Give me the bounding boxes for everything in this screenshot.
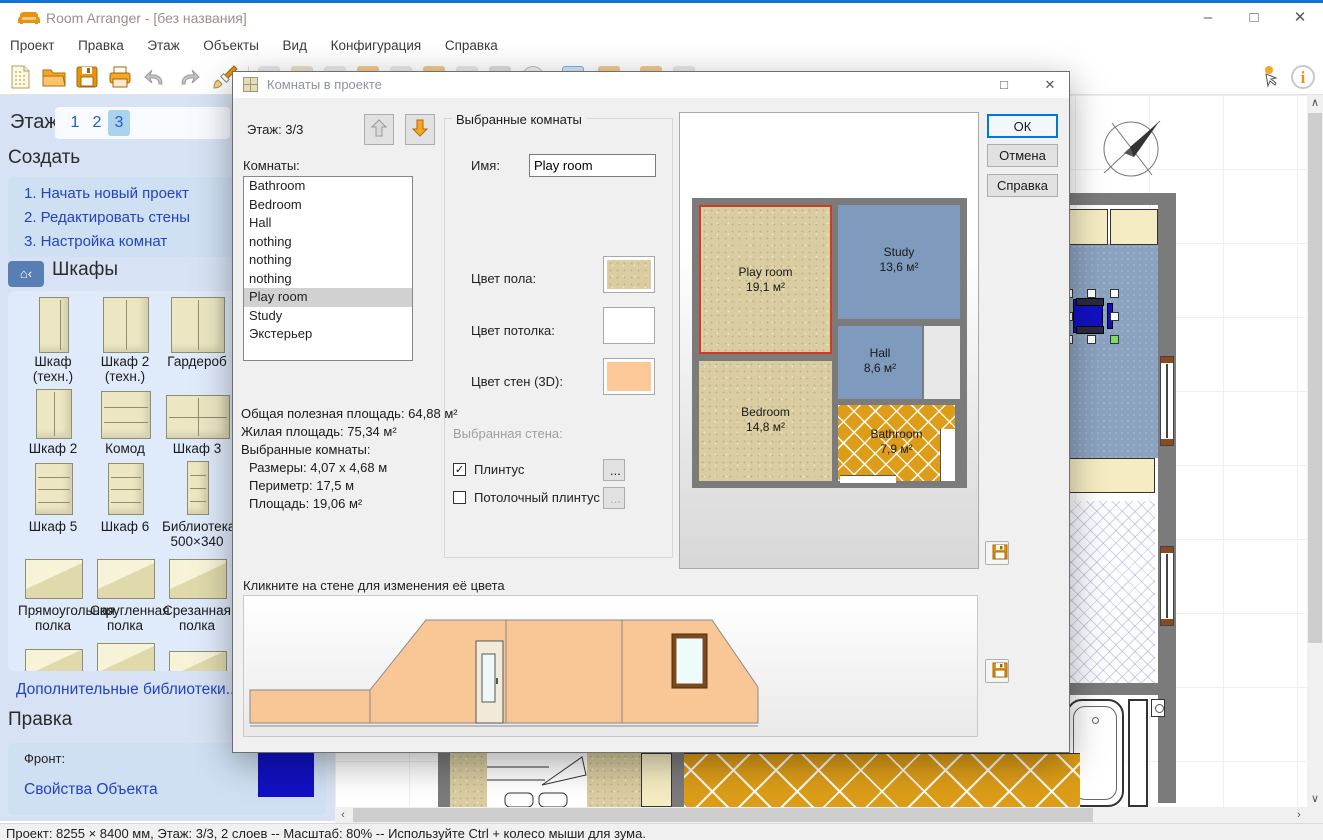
plan-cabinet[interactable] [641,753,672,807]
save-icon[interactable] [74,64,100,90]
furniture-thumb-shelf-3d[interactable] [169,651,227,671]
walls-color-preview [607,362,651,391]
furniture-thumb-cabinet[interactable] [39,297,69,353]
furniture-label[interactable]: Срезанная полка [162,603,232,633]
wall-elevation-drawing[interactable] [244,596,977,736]
menu-edit[interactable]: Правка [68,33,134,58]
home-icon: ⌂ [20,266,28,281]
preview-gap [924,326,960,399]
arrow-up-icon [371,119,387,137]
preview-room-name: Play room [738,265,792,279]
furniture-label[interactable]: Прямоугольная полка [18,603,88,633]
menu-objects[interactable]: Объекты [193,33,269,58]
room-list-item[interactable]: nothing [244,270,412,289]
menu-view[interactable]: Вид [273,33,317,58]
furniture-thumb-dresser[interactable] [101,391,151,439]
detail-line [111,477,141,478]
ceiling-color-preview [607,311,651,340]
walls-color-swatch[interactable] [603,358,655,395]
vertical-scrollbar[interactable]: ∧ ∨ [1307,95,1323,807]
furniture-label[interactable]: Шкаф 6 [90,519,160,534]
move-room-up-button[interactable] [364,114,394,145]
furniture-thumb-shelf-3d[interactable] [169,559,227,599]
help-button[interactable]: Справка [987,174,1058,197]
scroll-left-arrow[interactable]: ‹ [335,807,351,823]
preview-room-bathroom[interactable]: Bathroom7,9 м² [838,405,955,481]
preview-door-opening [940,429,955,481]
plan-fixture-small[interactable] [1151,699,1165,717]
plan-fixture[interactable] [1128,699,1148,807]
floor-tab-1[interactable]: 1 [64,110,86,136]
stat-total-usable-area: Общая полезная площадь: 64,88 м² [241,406,458,421]
detail-line [104,407,148,408]
detail-line [111,489,141,490]
preview-room-playroom[interactable]: Play room19,1 м² [699,205,832,354]
detail-line [198,300,199,350]
furniture-thumb-shelf-3d[interactable] [97,643,155,671]
plan-window[interactable] [1160,356,1174,446]
selection-rotate-handle[interactable] [1110,335,1119,344]
plan-floor-tan[interactable] [450,753,487,807]
furniture-thumb-wardrobe[interactable] [171,297,225,353]
wall-elevation-panel[interactable] [243,595,978,737]
open-folder-icon[interactable] [41,64,67,90]
arrow-down-icon [412,119,428,137]
preview-room-area: 14,8 м² [746,420,785,434]
window-cap [1161,357,1173,363]
detail-line [111,502,141,503]
ceiling-color-label: Цвет потолка: [471,323,555,338]
window-cap [1161,547,1173,553]
furniture-thumb-shelf[interactable] [166,395,230,439]
horizontal-scroll-thumb[interactable] [353,808,1093,822]
library-home-button[interactable]: ⌂‹ [8,261,44,287]
create-header: Создать [8,147,80,169]
walls-color-label: Цвет стен (3D): [471,374,563,389]
plinth-label: Плинтус [474,462,524,477]
preview-room-bedroom[interactable]: Bedroom14,8 м² [699,361,832,481]
rooms-list-label: Комнаты: [243,158,300,173]
menu-project[interactable]: Проект [0,33,64,58]
detail-line [38,489,70,490]
ceiling-color-swatch[interactable] [603,307,655,344]
save-preview-button[interactable] [985,541,1009,565]
front-color-swatch[interactable] [258,749,314,797]
dialog-maximize-button[interactable]: □ [985,72,1023,98]
step-setup-rooms-link[interactable]: 3. Настройка комнат [24,233,167,250]
selection-handle[interactable] [1110,289,1119,298]
preview-room-area: 19,1 м² [746,280,785,294]
floor-color-swatch[interactable] [603,256,655,293]
floppy-icon [992,544,1008,560]
dialog-close-button[interactable]: ✕ [1031,72,1069,98]
dialog-title-bar: Комнаты в проекте □ ✕ [233,72,1069,98]
preview-room-area: 13,6 м² [880,260,919,274]
preview-room-area: 7,9 м² [880,442,912,456]
detail-line [38,477,70,478]
bathtub-drain [1092,717,1099,724]
ceiling-plinth-options-button[interactable]: ... [603,487,625,509]
scroll-up-arrow[interactable]: ∧ [1307,95,1323,111]
selected-wall-label: Выбранная стена: [453,426,563,441]
chevron-left-icon: ‹ [28,266,32,281]
room-arranger-window: Room Arranger - [без названия] – □ ✕ Про… [0,0,1323,840]
furniture-thumb-cabinet[interactable] [103,297,149,353]
app-sofa-icon [18,11,40,28]
furniture-thumb-shelf-3d[interactable] [25,649,83,671]
dialog-title: Комнаты в проекте [267,77,382,92]
svg-text:i: i [1301,68,1306,87]
room-list-item-selected[interactable]: Play room [244,288,412,307]
furniture-label[interactable]: Скругленная полка [90,603,160,633]
save-elevation-button[interactable] [985,659,1009,683]
step-new-project-link[interactable]: 1. Начать новый проект [24,185,189,202]
rooms-preview-panel[interactable]: Play room19,1 м² Study13,6 м² Hall8,6 м²… [679,112,979,569]
ok-button[interactable]: ОК [987,114,1058,138]
floor-color-preview [607,260,651,289]
dialog-floor-info: Этаж: 3/3 [247,122,303,137]
wall-hint: Кликните на стене для изменения её цвета [243,578,505,593]
dialog-icon [243,77,258,92]
redo-icon[interactable] [176,64,202,90]
ceiling-plinth-label: Потолочный плинтус [474,490,600,505]
undo-icon[interactable] [142,64,168,90]
menu-help[interactable]: Справка [435,33,508,58]
stat-perimeter: Периметр: 17,5 м [249,478,354,493]
plan-wall[interactable] [672,753,684,807]
scroll-down-arrow[interactable]: ∨ [1307,791,1323,807]
preview-room-name: Bedroom [741,405,790,419]
menu-configuration[interactable]: Конфигурация [321,33,432,58]
step-edit-walls-link[interactable]: 2. Редактировать стены [24,209,190,226]
info-icon[interactable]: i [1290,64,1316,90]
move-room-down-button[interactable] [405,114,435,145]
elevation-door[interactable] [476,641,503,723]
preview-room-study[interactable]: Study13,6 м² [838,205,960,319]
chair-armrest [1076,326,1104,334]
preview-window-opening [840,475,896,483]
scroll-right-arrow[interactable]: › [1291,807,1307,823]
scrollbar-corner [1307,807,1323,823]
window-cap [1161,619,1173,625]
furniture-label[interactable]: Гардероб [162,354,232,369]
furniture-thumb-shelf-3d[interactable] [25,559,83,599]
furniture-thumb-library[interactable] [187,461,209,515]
detail-line [198,398,199,436]
close-button[interactable]: ✕ [1277,3,1323,33]
fixture-knob [1155,704,1164,713]
plan-floor-tan[interactable] [587,753,641,807]
preview-room-hall[interactable]: Hall8,6 м² [838,326,922,399]
rooms-dialog: Комнаты в проекте □ ✕ Этаж: 3/3 Комнаты:… [232,71,1070,753]
floor-color-label: Цвет пола: [471,271,536,286]
plinth-checkbox-checked[interactable]: ✓ [453,463,466,476]
detail-line [104,422,148,423]
rooms-listbox[interactable]: Bathroom Bedroom Hall nothing nothing no… [243,176,413,361]
furniture-thumb-shelf-3d[interactable] [97,559,155,599]
floppy-icon [992,662,1008,678]
room-name-input[interactable] [529,154,656,177]
selection-handle[interactable] [1087,289,1096,298]
floor-tabs: 1 2 3 [55,107,230,139]
furniture-label[interactable]: Шкаф 2 (техн.) [90,354,160,384]
edit-header: Правка [8,709,72,731]
furniture-label[interactable]: Библиотека; 500×340 [162,519,232,549]
floor-label: Этаж [10,111,58,134]
window-pane [1166,554,1168,618]
horizontal-scrollbar[interactable]: ‹ › [335,807,1307,823]
plan-room-bathroom-strip[interactable] [684,753,1080,807]
selection-handle[interactable] [1087,335,1096,344]
room-list-item[interactable]: Bedroom [244,196,412,215]
object-props-panel: Фронт: Свойства Объекта [8,743,326,815]
compass-icon [1100,113,1164,184]
stat-selected-rooms: Выбранные комнаты: [241,442,371,457]
detail-line [60,300,61,350]
floor-tab-2[interactable]: 2 [86,110,108,136]
vertical-scroll-thumb[interactable] [1308,113,1322,643]
cancel-button[interactable]: Отмена [987,144,1058,167]
plan-chair-selected[interactable] [1073,299,1103,333]
floor-tab-3-active[interactable]: 3 [108,110,130,136]
elevation-window[interactable] [672,634,707,688]
pointer-hand-icon[interactable] [1256,64,1282,90]
title-bar: Room Arranger - [без названия] – □ ✕ [0,3,1323,33]
detail-line [190,501,206,502]
plan-room-bedroom-strip[interactable] [487,753,587,807]
more-libraries-link[interactable]: Дополнительные библиотеки.. [16,681,234,699]
detail-line [126,300,127,350]
room-list-item[interactable]: Bathroom [244,177,412,196]
plan-bed-outline [487,753,587,807]
detail-line [38,502,70,503]
window-title: Room Arranger - [без названия] [46,10,247,26]
cabinets-header: Шкафы [52,259,118,281]
menu-floor[interactable]: Этаж [137,33,189,58]
plan-cabinet[interactable] [1062,458,1155,493]
furniture-label[interactable]: Шкаф 5 [18,519,88,534]
ceiling-plinth-checkbox-unchecked[interactable] [453,491,466,504]
furniture-thumb-bookcase[interactable] [108,463,144,515]
selection-handle[interactable] [1110,312,1119,321]
detail-line [54,392,55,436]
window-cap [1161,439,1173,445]
room-list-item[interactable]: Экстерьер [244,325,412,344]
stat-area: Площадь: 19,06 м² [249,496,362,511]
preview-room-name: Bathroom [870,427,922,441]
front-label: Фронт: [24,751,65,766]
status-bar: Проект: 8255 × 8400 мм, Этаж: 3/3, 2 сло… [0,823,1323,840]
menu-bar: Проект Правка Этаж Объекты Вид Конфигура… [0,33,1323,60]
preview-room-area: 8,6 м² [864,361,896,375]
chair-armrest [1076,298,1104,306]
furniture-thumb-bookcase[interactable] [35,463,73,515]
furniture-label[interactable]: Шкаф (техн.) [18,354,88,384]
room-list-item[interactable]: Study [244,307,412,326]
plan-window[interactable] [1160,546,1174,626]
furniture-label[interactable]: Комод [90,441,160,456]
furniture-label[interactable]: Шкаф 2 [18,441,88,456]
room-list-item[interactable]: nothing [244,233,412,252]
plan-cabinet[interactable] [1110,209,1158,245]
group-title: Выбранные комнаты [452,112,586,127]
window-pane [1166,364,1168,438]
preview-room-name: Study [884,245,915,259]
preview-room-name: Hall [870,346,891,360]
stat-dimensions: Размеры: 4,07 x 4,68 м [249,460,387,475]
minimize-button[interactable]: – [1185,3,1231,33]
object-properties-link[interactable]: Свойства Объекта [24,781,158,799]
detail-line [190,488,206,489]
room-list-item[interactable]: Hall [244,214,412,233]
plan-wall[interactable] [438,753,450,807]
plinth-options-button[interactable]: ... [603,459,625,481]
new-document-icon[interactable] [8,64,34,90]
furniture-label[interactable]: Шкаф 3 [162,441,232,456]
name-label: Имя: [471,158,500,173]
stat-living-area: Жилая площадь: 75,34 м² [241,424,397,439]
maximize-button[interactable]: □ [1231,3,1277,33]
room-list-item[interactable]: nothing [244,251,412,270]
furniture-thumb-cabinet[interactable] [36,389,72,439]
print-icon[interactable] [107,64,133,90]
detail-line [190,475,206,476]
detail-line [244,84,257,85]
